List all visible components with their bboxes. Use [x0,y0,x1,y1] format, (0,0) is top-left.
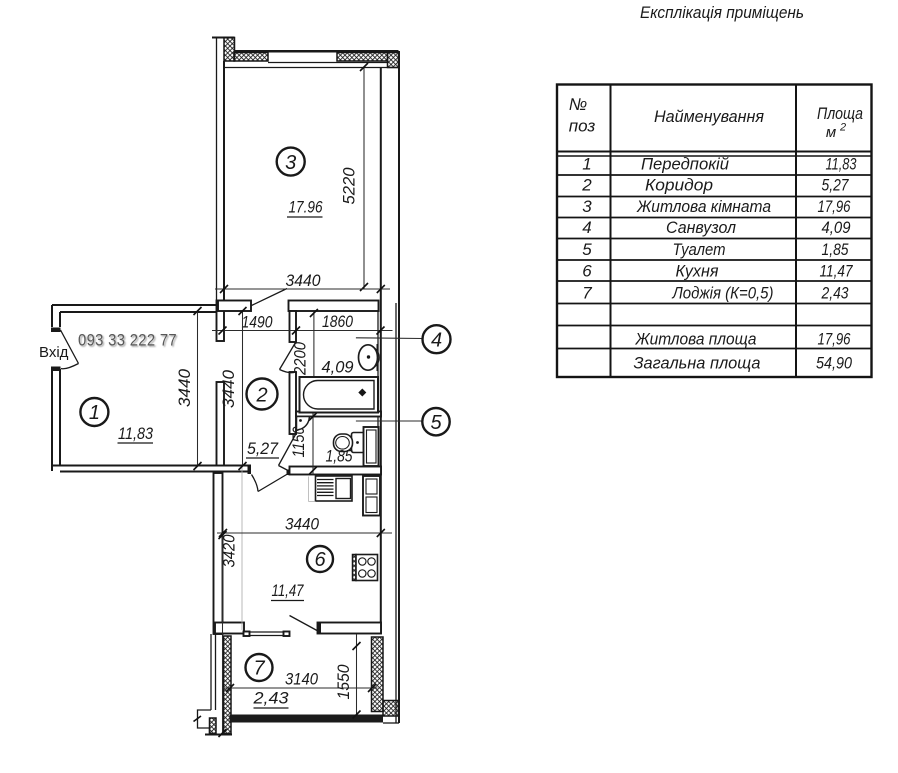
svg-text:3440: 3440 [219,369,238,408]
svg-text:7: 7 [253,658,265,680]
svg-text:1150: 1150 [289,426,308,457]
svg-text:17.96: 17.96 [289,198,323,217]
svg-text:2,43: 2,43 [252,689,289,708]
svg-text:Лоджія (К=0,5): Лоджія (К=0,5) [672,284,774,303]
svg-text:3: 3 [582,197,592,216]
svg-text:11,47: 11,47 [272,581,304,600]
svg-text:Експлікація приміщень: Експлікація приміщень [640,3,804,22]
svg-text:3440: 3440 [286,271,321,290]
svg-text:Передпокій: Передпокій [641,155,730,174]
svg-text:11,83: 11,83 [826,155,857,174]
svg-text:1550: 1550 [334,664,353,699]
svg-text:4: 4 [431,330,442,352]
svg-text:Житлова площа: Житлова площа [635,330,757,349]
svg-text:3440: 3440 [285,515,319,534]
svg-text:6: 6 [582,262,592,281]
svg-text:17,96: 17,96 [818,330,851,349]
svg-text:3140: 3140 [285,670,318,689]
svg-text:Туалет: Туалет [673,240,726,259]
svg-text:Загальна площа: Загальна площа [634,354,761,373]
svg-text:3: 3 [285,152,296,174]
svg-text:Найменування: Найменування [654,107,764,126]
svg-text:2,43: 2,43 [821,284,849,303]
svg-text:3420: 3420 [220,534,239,567]
svg-text:2200: 2200 [291,342,310,376]
svg-text:Вхід: Вхід [39,344,69,361]
svg-text:4,09: 4,09 [822,218,851,237]
svg-text:1860: 1860 [322,312,353,331]
svg-text:1,85: 1,85 [326,447,353,466]
svg-text:1,85: 1,85 [822,240,849,259]
svg-text:4,09: 4,09 [322,358,355,377]
svg-text:093 33 222 77: 093 33 222 77 [78,331,177,350]
svg-text:7: 7 [582,284,592,303]
svg-text:17,96: 17,96 [818,197,851,216]
svg-text:11,83: 11,83 [118,424,153,443]
svg-text:Коридор: Коридор [645,176,713,195]
svg-text:поз: поз [569,117,596,136]
svg-text:6: 6 [314,549,326,571]
svg-text:1490: 1490 [242,313,273,332]
svg-text:2: 2 [255,385,267,407]
svg-text:3440: 3440 [175,368,194,407]
svg-text:Житлова кімната: Житлова кімната [636,197,771,216]
svg-text:1: 1 [582,155,591,174]
svg-text:Площа: Площа [817,104,863,123]
svg-text:Санвузол: Санвузол [666,218,736,237]
svg-text:4: 4 [582,218,591,237]
svg-text:5: 5 [582,240,592,259]
svg-text:5,27: 5,27 [247,439,279,458]
svg-text:2: 2 [581,176,592,195]
svg-text:5220: 5220 [340,167,359,205]
svg-text:№: № [569,95,587,114]
svg-text:54,90: 54,90 [816,354,852,373]
svg-text:м: м [826,124,836,141]
svg-text:11,47: 11,47 [820,262,853,281]
svg-text:1: 1 [89,402,100,424]
svg-text:5: 5 [430,412,442,434]
svg-text:5,27: 5,27 [822,176,849,195]
svg-text:Кухня: Кухня [676,262,719,281]
svg-text:2: 2 [839,122,846,134]
